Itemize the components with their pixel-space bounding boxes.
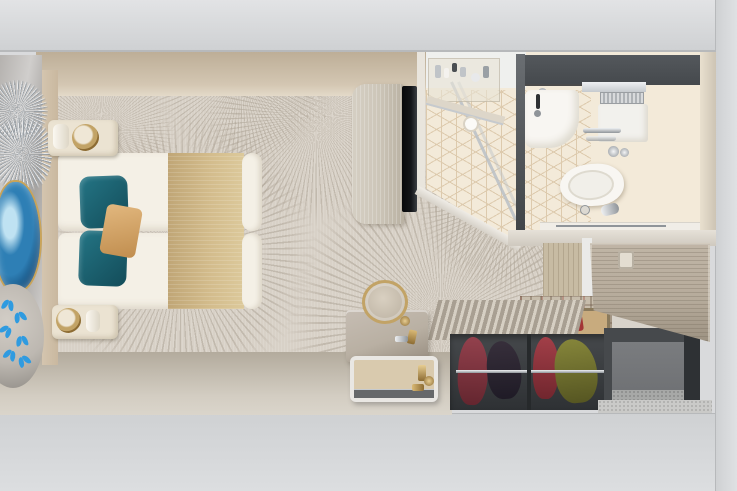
floor-drain xyxy=(580,205,590,215)
chrome-wall-shelf xyxy=(582,82,646,92)
exterior-bottom-band xyxy=(0,413,737,491)
shower-dark-panel xyxy=(525,55,721,85)
wardrobe-rail xyxy=(456,370,608,373)
vent-grille xyxy=(600,92,644,104)
butterfly-decor xyxy=(15,335,28,347)
nook-back-panel xyxy=(612,342,684,390)
entry-speckled-floor xyxy=(598,400,712,413)
door-handle xyxy=(618,251,634,269)
stateroom-render xyxy=(0,0,737,491)
toiletry-bottle xyxy=(452,63,457,72)
toiletry-bottle xyxy=(444,68,449,78)
bathroom-partition-wall xyxy=(417,52,425,192)
exterior-right-band xyxy=(715,0,737,491)
basin-faucet xyxy=(536,94,540,109)
amenity-tray xyxy=(350,356,438,402)
toiletry-bottle xyxy=(471,73,480,82)
bed-foot-bolster xyxy=(242,153,262,231)
tv-cabinet xyxy=(352,84,404,224)
towel-rail xyxy=(583,128,621,133)
toilet-paper-holder xyxy=(608,146,619,157)
desk-accessory-chrome xyxy=(395,336,408,342)
toilet-seat xyxy=(567,169,615,202)
lamp-shade xyxy=(86,310,100,332)
brass-table-lamp xyxy=(56,308,81,333)
wardrobe-divider xyxy=(527,334,531,410)
toiletry-bottle xyxy=(483,66,489,78)
lamp-shade xyxy=(53,124,69,149)
bathroom-right-wall xyxy=(700,52,716,244)
tray-bottle xyxy=(424,376,434,386)
luggage-nook xyxy=(604,328,700,410)
toiletry-bottle xyxy=(460,67,466,77)
faucet-base xyxy=(534,110,541,117)
bed-foot-bolster xyxy=(242,233,262,309)
toiletry-bottle xyxy=(435,65,441,78)
towel-rail xyxy=(586,136,616,141)
shower-frame-pillar xyxy=(516,54,525,238)
bed-runner-blanket xyxy=(168,153,244,309)
nook-side-panel xyxy=(684,330,700,410)
toilet-paper-roll xyxy=(620,148,629,157)
countertop-sink xyxy=(463,116,479,132)
tray-bottle xyxy=(412,384,424,391)
ledge-towel-bar xyxy=(556,225,666,227)
exterior-top-band xyxy=(0,0,737,52)
brass-table-lamp xyxy=(72,124,99,151)
desk-accessory-gold xyxy=(400,316,410,326)
vanity-shelf xyxy=(428,58,500,102)
